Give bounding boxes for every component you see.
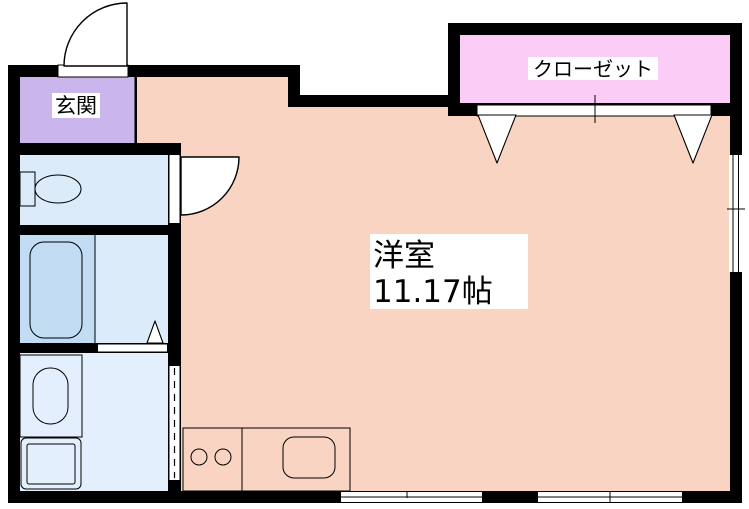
wall-closet-nub-right: [711, 105, 742, 116]
closet-label: クローゼット: [533, 57, 653, 81]
wall-step: [288, 65, 300, 107]
floor-plan: 玄関 クローゼット 洋室 11.17帖: [0, 0, 749, 509]
wall-closet-nub-left: [448, 105, 477, 116]
room-name-label: 洋室: [373, 238, 435, 274]
wall-closet-top: [448, 23, 742, 35]
wall-toilet-bath: [8, 225, 181, 235]
entrance-label: 玄関: [55, 94, 97, 118]
wall-top-left: [8, 65, 300, 77]
entrance-doorway: [58, 65, 128, 77]
closet-doorway: [477, 105, 711, 116]
window-right: [729, 155, 742, 272]
wall-closet-left: [448, 23, 460, 107]
wall-left: [8, 65, 20, 503]
entrance-boundary-line: [135, 77, 138, 145]
wall-below-entrance: [8, 143, 181, 155]
wall-top-middle: [300, 95, 460, 107]
room-toilet: [20, 155, 168, 225]
toilet-doorway: [170, 155, 180, 223]
room-size-label: 11.17帖: [373, 274, 493, 310]
bath-doorway: [98, 345, 167, 352]
